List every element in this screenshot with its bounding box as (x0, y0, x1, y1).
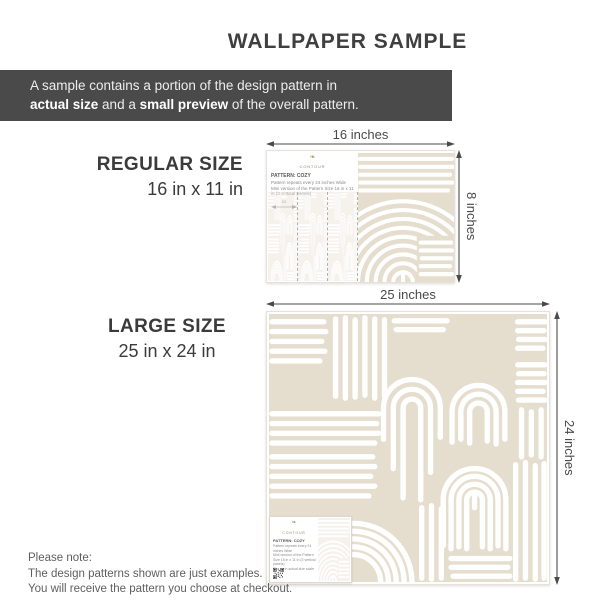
mini-pattern-preview (268, 192, 297, 281)
brand-logo: ❧ CONTOUR (270, 520, 318, 536)
pattern-name: PATTERN: COZY (271, 173, 358, 179)
banner-text-1: A sample contains a portion of the desig… (30, 78, 337, 93)
mini-pattern-preview (328, 192, 357, 281)
mini-pattern-preview (318, 518, 350, 581)
footer-line-3: You will receive the pattern you choose … (28, 582, 292, 598)
large-size-title: LARGE SIZE (94, 315, 240, 339)
brand-name: CONTOUR (300, 164, 326, 169)
banner-text-end: of the overall pattern. (228, 97, 359, 112)
brand-logo: ❧ CONTOUR (267, 154, 358, 169)
footer-note: Please note: The design patterns shown a… (28, 551, 292, 598)
banner-line-2: actual size and a small preview of the o… (0, 96, 452, 115)
mini-preview-panel (328, 192, 358, 281)
regular-size-label-block: REGULAR SIZE 16 in x 11 in (55, 153, 243, 201)
mini-preview-panel (298, 192, 328, 281)
banner-bold-small-preview: small preview (140, 97, 229, 112)
large-width-arrow-icon (266, 300, 550, 308)
description-banner: A sample contains a portion of the desig… (0, 70, 452, 121)
regular-size-dimensions: 16 in x 11 in (55, 177, 243, 201)
page-title: WALLPAPER SAMPLE (0, 30, 600, 54)
banner-line-1: A sample contains a portion of the desig… (0, 77, 452, 96)
mini-preview-panels (268, 192, 358, 281)
pattern-name: PATTERN: COZY (273, 538, 318, 543)
cozy-pattern-artwork (358, 153, 454, 282)
banner-text-mid: and a (98, 97, 139, 112)
regular-size-title: REGULAR SIZE (55, 153, 243, 177)
floral-brand-mark-icon: ❧ (267, 154, 358, 161)
regular-width-arrow-icon (266, 140, 455, 148)
large-height-label: 24 inches (561, 311, 577, 585)
large-sample-card: ❧ CONTOUR PATTERN: COZY Pattern repeats … (266, 311, 550, 585)
wallpaper-sample-infographic: WALLPAPER SAMPLE A sample contains a por… (0, 0, 600, 600)
large-size-dimensions: 25 in x 24 in (94, 339, 240, 363)
brand-name: CONTOUR (282, 531, 305, 535)
regular-sample-card: ❧ CONTOUR PATTERN: COZY Pattern repeats … (266, 150, 455, 283)
floral-brand-mark-icon: ❧ (270, 520, 318, 527)
regular-height-label: 8 inches (463, 150, 479, 283)
pattern-info-line-1: Pattern repeats every 24 inches Wide (271, 180, 358, 186)
footer-line-1: Please note: (28, 551, 292, 567)
mini-preview-panel (268, 192, 298, 281)
banner-bold-actual-size: actual size (30, 97, 98, 112)
regular-actual-size-pattern (358, 153, 454, 282)
regular-sample-info-panel: ❧ CONTOUR PATTERN: COZY Pattern repeats … (267, 151, 358, 282)
large-size-label-block: LARGE SIZE 25 in x 24 in (94, 315, 240, 363)
large-height-arrow-icon (553, 311, 561, 585)
mini-pattern-preview (298, 192, 327, 281)
regular-height-arrow-icon (455, 150, 463, 283)
label-mini-preview (318, 518, 350, 581)
footer-line-2: The design patterns shown are just examp… (28, 567, 292, 583)
